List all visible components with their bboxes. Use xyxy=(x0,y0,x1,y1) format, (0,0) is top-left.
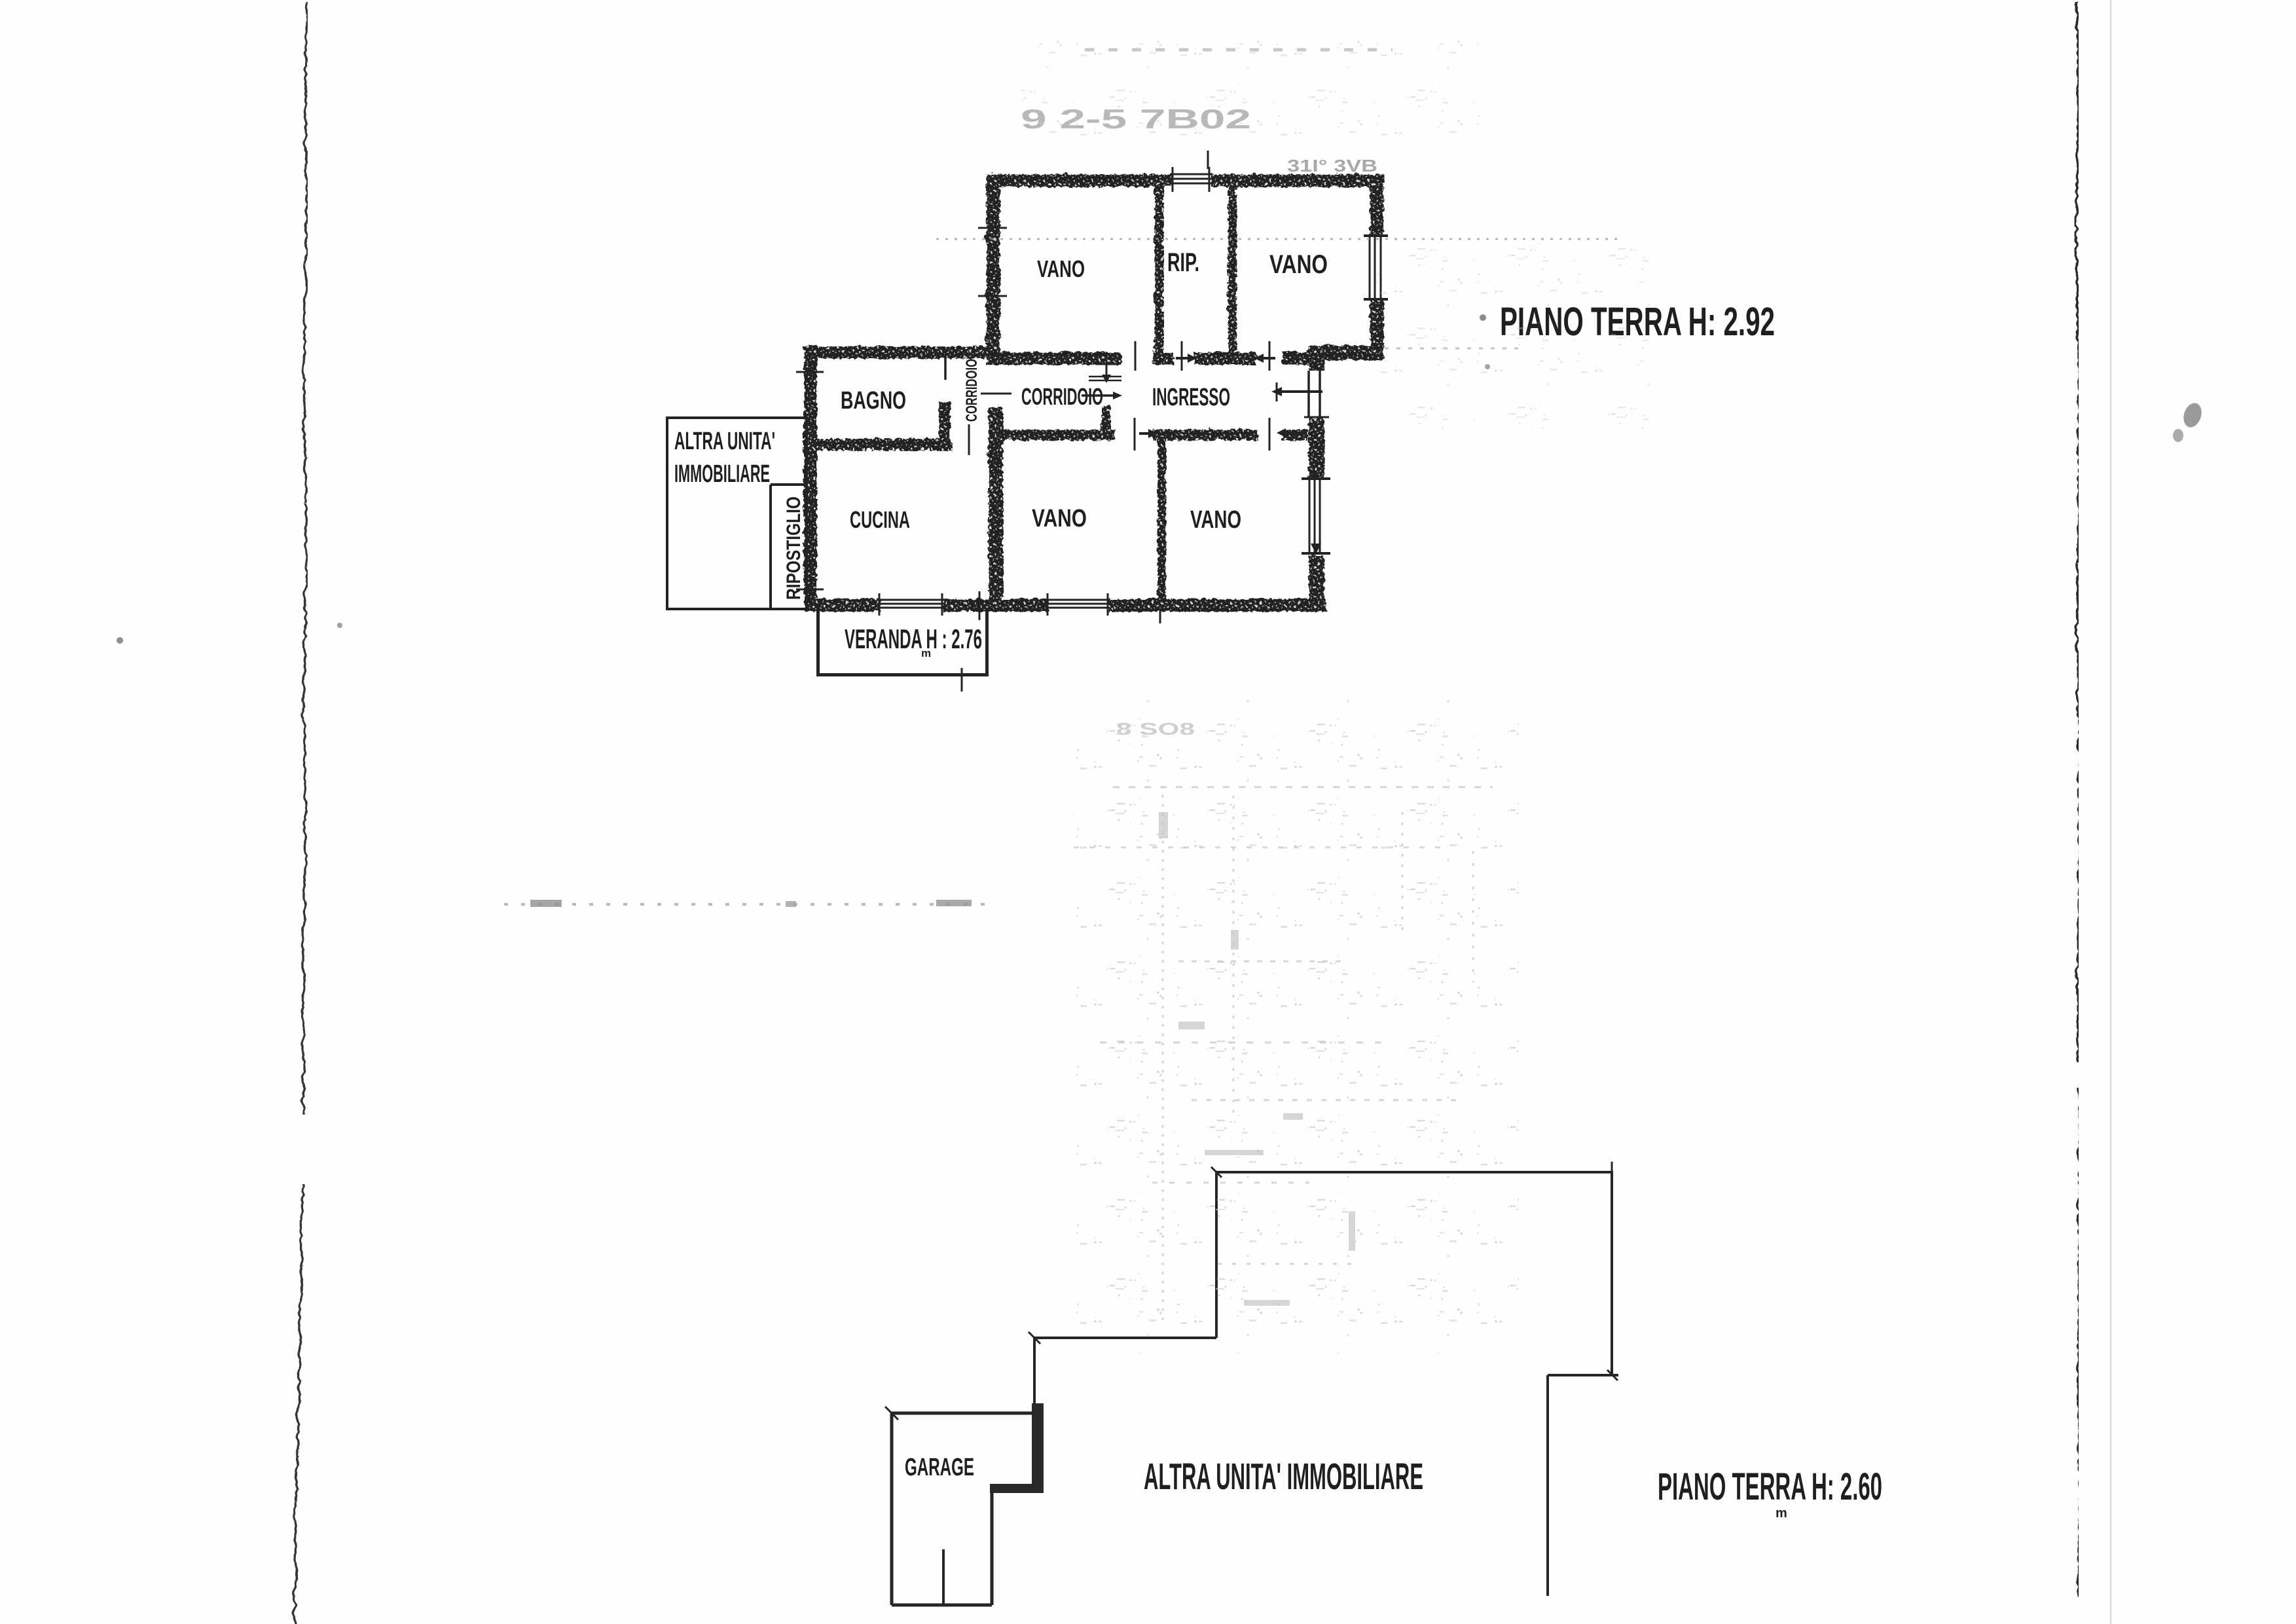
svg-text:BAGNO: BAGNO xyxy=(841,387,906,415)
svg-text:CUCINA: CUCINA xyxy=(850,506,910,533)
svg-text:CORRIDOIO: CORRIDOIO xyxy=(963,359,981,422)
svg-text:RIP.: RIP. xyxy=(1167,248,1199,277)
svg-text:ALTRA UNITA' IMMOBILIARE: ALTRA UNITA' IMMOBILIARE xyxy=(1144,1456,1423,1498)
svg-text:CORRIDOIO: CORRIDOIO xyxy=(1021,383,1103,410)
svg-text:IMMOBILIARE: IMMOBILIARE xyxy=(674,460,770,488)
svg-text:VERANDA H : 2.76: VERANDA H : 2.76 xyxy=(845,623,982,654)
svg-text:INGRESSO: INGRESSO xyxy=(1152,384,1230,411)
svg-text:m: m xyxy=(921,647,931,659)
svg-text:31I° 3VB: 31I° 3VB xyxy=(1287,156,1377,175)
svg-text:VANO: VANO xyxy=(1037,255,1085,282)
svg-text:GARAGE: GARAGE xyxy=(905,1454,974,1481)
svg-text:ALTRA UNITA': ALTRA UNITA' xyxy=(674,428,775,455)
svg-text:PIANO TERRA H: 2.60: PIANO TERRA H: 2.60 xyxy=(1658,1466,1882,1508)
svg-text:RIPOSTIGLIO: RIPOSTIGLIO xyxy=(783,496,805,600)
svg-text:VANO: VANO xyxy=(1190,506,1241,534)
svg-text:VANO: VANO xyxy=(1269,250,1328,279)
svg-text:VANO: VANO xyxy=(1032,505,1087,532)
svg-text:m: m xyxy=(1776,1506,1787,1521)
